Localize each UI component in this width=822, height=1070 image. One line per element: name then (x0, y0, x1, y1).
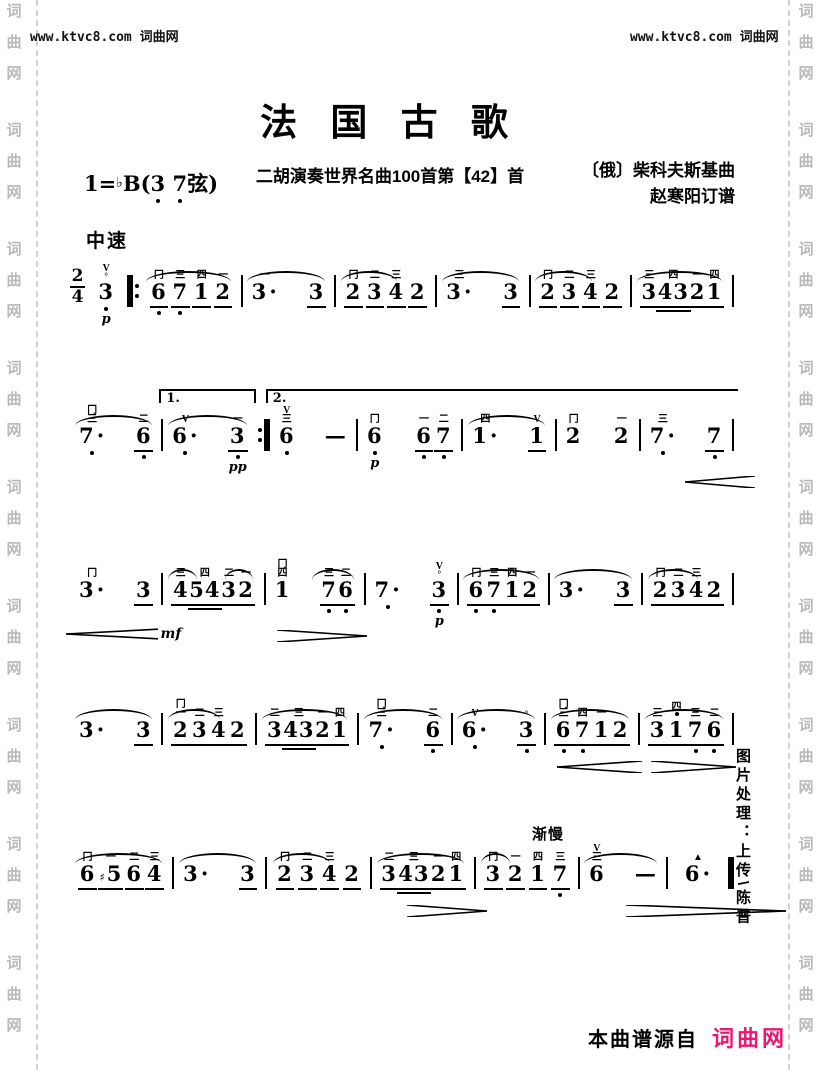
note-digit: 3 (192, 718, 208, 742)
note: 2 (706, 556, 723, 620)
note-underlines (191, 742, 208, 760)
note-underlines (530, 886, 547, 904)
note-underlines (706, 742, 723, 760)
note-digit: 7 (707, 424, 723, 448)
low-octave-dot (492, 609, 496, 613)
note-underlines (210, 742, 227, 760)
note-digit: 3· (446, 280, 472, 304)
note-underlines (658, 304, 689, 322)
note-underlines (472, 448, 498, 466)
note-value: 1 (669, 718, 685, 742)
note: 7· (375, 556, 401, 620)
note: 二6 (126, 840, 143, 904)
note-ornaments: 冂 (370, 402, 380, 424)
note-value: 6 (136, 424, 152, 448)
note-digit: 3 (221, 578, 237, 602)
note-digit: 7· (79, 424, 105, 448)
note: 三7 (687, 696, 704, 760)
note-value: 3 (98, 280, 114, 304)
note-underlines (540, 304, 557, 322)
note: 2 (409, 258, 426, 322)
measure: 2.V三6— (270, 402, 356, 475)
note: 7 (706, 402, 723, 466)
measure: V6·°3 (453, 696, 544, 760)
note: 二3 (299, 840, 316, 904)
note-digit: 3 (519, 718, 535, 742)
beam-line (686, 744, 705, 746)
note-value: 7 (707, 424, 723, 448)
note-digit: 2 (604, 280, 620, 304)
beam-line (320, 888, 339, 890)
low-octave-dot (473, 745, 477, 749)
note-underlines (79, 602, 105, 620)
note: 三4 (582, 258, 599, 322)
note-underlines (504, 602, 521, 620)
low-octave-dot (442, 455, 446, 459)
note: 三7 (321, 556, 338, 620)
note: 一♯5 (99, 840, 122, 904)
note-underlines (468, 602, 485, 620)
note-underlines (589, 886, 605, 904)
note-digit: 6· (172, 424, 198, 448)
note: 二3 (561, 258, 578, 322)
note: 3· (183, 840, 209, 904)
beam-line (506, 888, 525, 890)
note-digit: 3 (503, 280, 519, 304)
beam-line (387, 306, 406, 308)
beam-line (705, 604, 724, 606)
augmentation-dot: · (386, 718, 395, 742)
beam-line (237, 604, 256, 606)
note: 三7 (486, 556, 503, 620)
measure: 3·3 (174, 840, 265, 904)
note-ornaments: 四 (200, 556, 210, 578)
note-digit: 6 (589, 862, 605, 886)
note-digit: 3 (309, 280, 325, 304)
note-underlines (325, 448, 347, 466)
note-value: 6 (416, 424, 432, 448)
note-value: — (325, 424, 347, 448)
note-digit: 2 (315, 718, 331, 742)
beam-line (705, 306, 724, 308)
notation-system: 24V°3p冂6三7四1一2一3·3冂2二3三42三3·3冂2二3三42三3四4… (70, 258, 734, 327)
note: 四1 (706, 258, 723, 322)
augmentation-dot: · (190, 424, 199, 448)
note-underlines (266, 742, 283, 760)
note: 冂2 (276, 840, 293, 904)
augmentation-dot: · (269, 280, 278, 304)
note-underlines (221, 602, 238, 620)
note-digit: 3 (267, 718, 283, 742)
augmentation-dot: · (464, 280, 473, 304)
note-underlines (135, 742, 152, 760)
augmentation-dot: · (97, 718, 106, 742)
measure: 冂三6四7一12 (546, 696, 638, 760)
note: 二3 (191, 696, 208, 760)
note-digit: 2 (540, 280, 556, 304)
beam-line (611, 744, 630, 746)
measure: 1.V6·一3pp (163, 402, 255, 475)
note-value: 2 (346, 280, 362, 304)
note-digit: 2 (566, 424, 582, 448)
note: °3 (518, 696, 535, 760)
note-underlines (604, 304, 621, 322)
note: 一2 (215, 258, 232, 322)
note: 三7 (172, 258, 189, 322)
augmentation-dot: · (576, 578, 585, 602)
beam-line (554, 744, 573, 746)
beam-line (705, 744, 724, 746)
low-octave-dot (525, 749, 529, 753)
ritardando-label: 渐慢 (532, 823, 564, 844)
beam-line (551, 888, 570, 890)
note-digit: 3 (650, 718, 666, 742)
beam-line (134, 604, 153, 606)
decrescendo-hairpin (626, 905, 786, 917)
note-value: 3 (300, 862, 316, 886)
measure: 三3四1三7二6 (640, 696, 732, 760)
note: 2 (612, 696, 629, 760)
note-underlines (507, 886, 524, 904)
note-value: 4 (147, 862, 163, 886)
measure: 3·3 (550, 556, 641, 629)
note-value: 3 (671, 578, 687, 602)
note-value: 1 (194, 280, 210, 304)
note-digit: 2 (410, 280, 426, 304)
note: 一2 (238, 556, 255, 620)
note-value: 2 (540, 280, 556, 304)
note-underlines: p (431, 602, 448, 629)
note-underlines (593, 742, 610, 760)
note-digit: 7 (688, 718, 704, 742)
note-value: 2 (230, 718, 246, 742)
note-underlines (79, 448, 105, 466)
note: 二7 (435, 402, 452, 466)
decrescendo-hairpin (277, 630, 367, 642)
note: 三3· (446, 258, 472, 322)
note-digit: 2 (707, 578, 723, 602)
note-value: 3 (240, 862, 256, 886)
note-value: 3 (309, 280, 325, 304)
measure: 冂2二3三42 (531, 258, 630, 327)
augmentation-dot: · (667, 424, 676, 448)
note-value: 4 (173, 578, 189, 602)
measure: 三3四43一2四1 (632, 258, 732, 327)
note-value: 7 (321, 578, 337, 602)
note-ornaments: V° (436, 556, 443, 578)
note-value: 3 (641, 280, 657, 304)
note: 二3 (366, 258, 383, 322)
note: 三4 (388, 258, 405, 322)
low-octave-dot (327, 609, 331, 613)
note: 3 (503, 258, 520, 322)
beam-line (521, 604, 540, 606)
beam-line (560, 306, 579, 308)
measure: 冂三7·二6 (359, 696, 450, 760)
measure: 冂6三7四1一2 (141, 258, 240, 327)
bottom-source-label: 本曲谱源自 (588, 1023, 698, 1052)
note-digit: 3 (240, 862, 256, 886)
note-digit: 7· (375, 578, 401, 602)
note: 冂2 (345, 258, 362, 322)
note-value: 54 (189, 578, 220, 602)
beam-line (447, 888, 466, 890)
note-digit: 1 (530, 862, 546, 886)
measure: 冂2二3三42 (643, 556, 732, 629)
augmentation-dot: · (490, 424, 499, 448)
bottom-site-name: 词曲网 (712, 1021, 787, 1053)
measure: 四1·V1 (463, 402, 554, 475)
note-underlines (275, 602, 291, 620)
note: 冂2 (566, 402, 582, 466)
note-underlines (135, 448, 152, 466)
note-value: 1 (529, 424, 545, 448)
note: 冂三7· (368, 696, 394, 760)
measure: 冂一2二3三42 (163, 696, 255, 760)
note-value: 3 (616, 578, 632, 602)
volta-bracket-1: 1. (159, 389, 255, 403)
measure: 冂6三7四1一2 (459, 556, 548, 629)
note: 二3 (381, 840, 398, 904)
beam-line (656, 310, 690, 312)
note-value: 7 (375, 578, 391, 602)
note-ornaments: 冂四 (278, 556, 288, 578)
note-value: 43 (658, 280, 689, 304)
note-underlines (189, 602, 220, 620)
note-digit: 2 (344, 862, 360, 886)
note: 三43 (283, 696, 314, 760)
note-underlines (381, 886, 398, 904)
note-value: 2 (277, 862, 293, 886)
note-underlines (321, 886, 338, 904)
note-value: 7 (79, 424, 95, 448)
note-value: 2 (238, 578, 254, 602)
note-ornaments: 冂 (569, 402, 579, 424)
note-digit: 54 (189, 578, 220, 602)
note: V°3p (98, 258, 114, 327)
note-underlines (635, 886, 657, 904)
beam-line (503, 604, 522, 606)
beam-line (192, 306, 211, 308)
note-value: 6 (80, 862, 96, 886)
note: 一6 (416, 402, 433, 466)
note-value: 3 (650, 718, 666, 742)
note: 2 (604, 258, 621, 322)
repeat-end-barline (256, 402, 270, 475)
note-underlines (687, 742, 704, 760)
note-value: 6 (151, 280, 167, 304)
note-digit: 6 (80, 862, 96, 886)
measure: 三4四54二3一2 (163, 556, 263, 629)
note-value: 3 (562, 280, 578, 304)
note-underlines (398, 886, 429, 904)
time-sig-numerator: 2 (72, 268, 84, 285)
note: 3 (135, 696, 152, 760)
note-digit: 6 (136, 424, 152, 448)
note-value: 6 (425, 718, 441, 742)
beam-line (134, 450, 153, 452)
note: 二6 (338, 556, 355, 620)
beam-line (188, 608, 222, 610)
note-digit: 3· (252, 280, 278, 304)
note-digit: 43 (398, 862, 429, 886)
note-digit: 3 (381, 862, 397, 886)
beam-line (408, 306, 427, 308)
note-value: 7 (650, 424, 666, 448)
beam-line (307, 306, 326, 308)
note-digit: 2 (215, 280, 231, 304)
note-underlines (668, 742, 685, 760)
note-value: 3 (503, 280, 519, 304)
note-underlines (670, 602, 687, 620)
note: 冂四1 (275, 556, 291, 620)
note-digit: 1 (594, 718, 610, 742)
beam-line (667, 744, 686, 746)
note: 冂3· (79, 556, 105, 620)
note: 冂2 (652, 556, 669, 620)
beam-line (220, 604, 239, 606)
beam-line (467, 604, 486, 606)
note: ▲6· (685, 840, 711, 904)
note-value: 2 (522, 578, 538, 602)
note-digit: 3· (79, 578, 105, 602)
note-value: 2 (410, 280, 426, 304)
note: 三43 (398, 840, 429, 904)
beam-line (171, 306, 190, 308)
measure: 冂6p一6二7 (358, 402, 462, 475)
beam-line (366, 306, 385, 308)
note: 冂6 (468, 556, 485, 620)
beam-line (434, 450, 453, 452)
note-underlines (503, 304, 520, 322)
note-underlines (649, 742, 666, 760)
note-digit: 2 (614, 424, 630, 448)
note: 四7 (574, 696, 591, 760)
measure: 二3三43一2四1 (372, 840, 474, 904)
beam-line (214, 306, 233, 308)
note: 一2 (507, 840, 524, 904)
note-underlines (486, 602, 503, 620)
note-digit: 1 (448, 862, 464, 886)
note-digit: 7 (321, 578, 337, 602)
note-digit: 2 (173, 718, 189, 742)
dynamic-marking: p (102, 312, 111, 327)
note-digit: 7· (650, 424, 676, 448)
note: V1 (529, 402, 546, 466)
low-octave-dot (142, 455, 146, 459)
beam-line (331, 744, 350, 746)
note: 四1 (504, 556, 521, 620)
note-value: 2 (604, 280, 620, 304)
note-underlines (368, 742, 394, 760)
dynamic-marking: p (435, 614, 444, 629)
note-underlines (126, 886, 143, 904)
note-digit: — (635, 862, 657, 886)
note-underlines (388, 304, 405, 322)
note-underlines (366, 304, 383, 322)
volta-label: 2. (273, 391, 287, 406)
note-digit: 2 (238, 578, 254, 602)
note-value: 4 (689, 578, 705, 602)
note-value: 7 (688, 718, 704, 742)
beam-line (484, 888, 503, 890)
note: — (325, 402, 347, 466)
note-underlines (183, 886, 209, 904)
measure: 三3·3 (437, 258, 528, 327)
note-digit: 3 (367, 280, 383, 304)
note-underlines (238, 602, 255, 620)
beam-line (228, 744, 247, 746)
note-underlines (172, 742, 189, 760)
measure: V°3p (85, 258, 127, 327)
note-value: 3 (267, 718, 283, 742)
note-value: 4 (583, 280, 599, 304)
note: 三7 (552, 840, 569, 904)
barline (732, 402, 734, 475)
note-underlines (641, 304, 658, 322)
note-digit: 4 (689, 578, 705, 602)
note-underlines (215, 304, 232, 322)
low-octave-dot (183, 451, 187, 455)
low-octave-dot (157, 311, 161, 315)
note-value: 1 (275, 578, 291, 602)
note-value: 6 (367, 424, 383, 448)
notation-system: 3·3冂一2二3三42二3三43一2四1冂三7·二6V6·°3冂三6四7一12三… (70, 696, 734, 760)
note-underlines (314, 742, 331, 760)
note-value: 1 (332, 718, 348, 742)
note-value: 2 (173, 718, 189, 742)
note-underlines (522, 602, 539, 620)
slur-arc (481, 853, 510, 864)
note-digit: 2 (613, 718, 629, 742)
beam-line (98, 888, 123, 890)
note-digit: 3· (183, 862, 209, 886)
note-value: 6 (172, 424, 188, 448)
note-digit: 2 (346, 280, 362, 304)
note-underlines (650, 448, 676, 466)
note-underlines (193, 304, 210, 322)
note-digit: 1 (275, 578, 291, 602)
note-digit: 6 (556, 718, 572, 742)
note-value: 7 (553, 862, 569, 886)
note-underlines (582, 304, 599, 322)
note-underlines (689, 304, 706, 322)
beam-line (429, 888, 448, 890)
note-digit: 2 (508, 862, 524, 886)
beam-line (145, 888, 164, 890)
note-value: 3 (559, 578, 575, 602)
measure: 冂2二3三42 (267, 840, 369, 904)
measure: 冂3·3mf (70, 556, 161, 629)
note-underlines (345, 304, 362, 322)
beam-line (150, 306, 169, 308)
note-value: 2 (653, 578, 669, 602)
note-value: 43 (398, 862, 429, 886)
note-value: 6 (279, 424, 295, 448)
note-underlines (430, 886, 447, 904)
note-digit: 3 (432, 578, 448, 602)
low-octave-dot (344, 609, 348, 613)
dynamic-marking: p (370, 456, 379, 471)
low-octave-dot (712, 749, 716, 753)
note-digit: 3 (562, 280, 578, 304)
note: 冂6p (367, 402, 383, 471)
augmentation-dot: · (702, 862, 711, 886)
decrescendo-hairpin (407, 905, 487, 917)
augmentation-dot: · (479, 718, 488, 742)
beam-line (343, 888, 362, 890)
note-ornaments: 一 (511, 840, 521, 862)
